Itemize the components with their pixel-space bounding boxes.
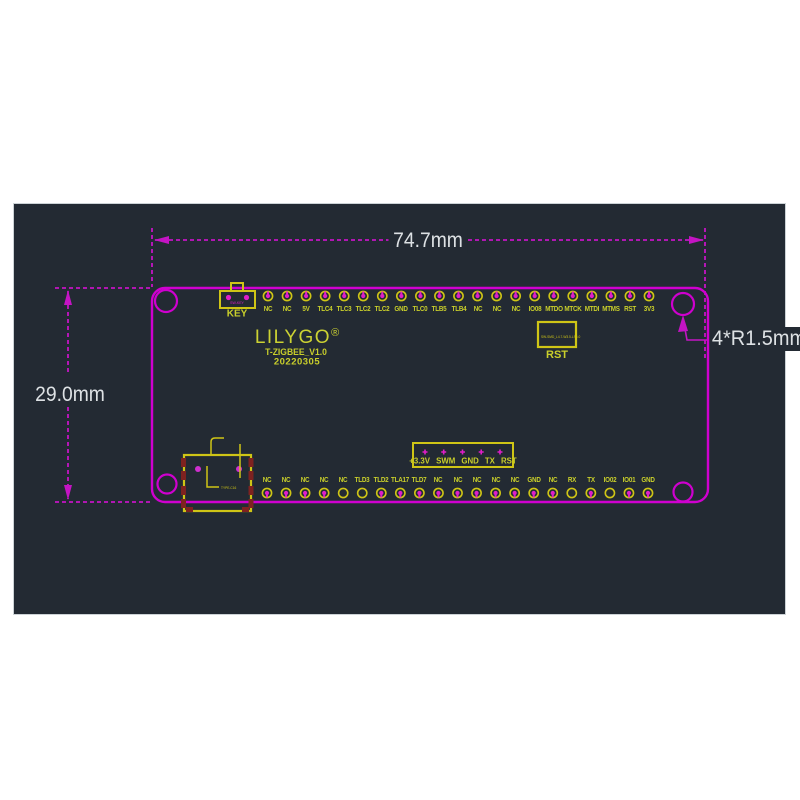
pin-label: GND bbox=[630, 475, 667, 484]
logo-text: LILYGO bbox=[255, 327, 331, 348]
rst-part-text: SW-SMD_L4.7-W3.5-LS6.0 bbox=[541, 334, 580, 339]
pin-label: 3V3 bbox=[631, 304, 668, 313]
board-model-text: T-ZIGBEE_V1.0 bbox=[265, 347, 327, 357]
product-image: 74.7mm 29.0mm 4*R1.5mm LILYGO® T-ZIGBEE_… bbox=[0, 0, 800, 800]
dimension-width-label: 74.7mm bbox=[389, 229, 468, 253]
board-date-text: 20220305 bbox=[274, 357, 320, 368]
lilygo-logo: LILYGO® bbox=[255, 327, 339, 349]
program-connector-labels: +3.3V SWM GND TX RST bbox=[409, 457, 516, 466]
dimension-radius-label: 4*R1.5mm bbox=[710, 327, 800, 351]
key-button-label: KEY bbox=[227, 309, 248, 320]
usb-part-text: TYPE-C16 bbox=[221, 485, 236, 490]
rst-button-label: RST bbox=[546, 349, 568, 361]
dimension-height-label: 29.0mm bbox=[31, 383, 110, 407]
cad-canvas bbox=[13, 203, 786, 615]
key-part-text: SW-KEY bbox=[230, 301, 244, 305]
registered-mark-icon: ® bbox=[331, 327, 339, 339]
